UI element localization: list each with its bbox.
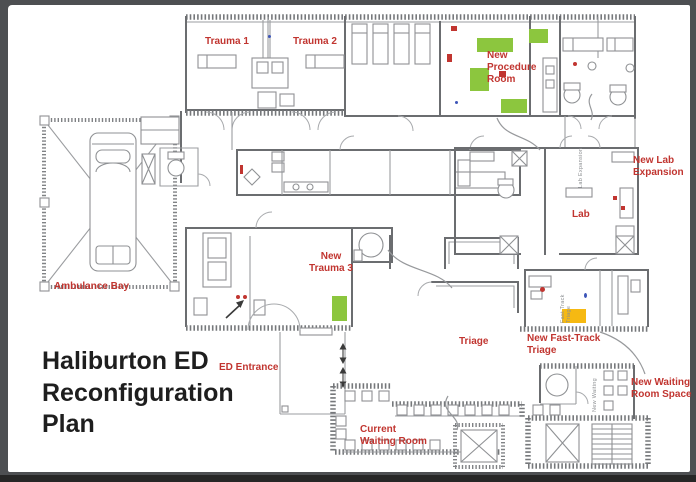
page-title-line3: Plan <box>42 409 234 441</box>
red-marker <box>540 287 545 292</box>
blue-marker <box>268 35 271 38</box>
label-new-trauma-3: New Trauma 3 <box>308 251 354 275</box>
arrow-annotation <box>226 305 240 318</box>
red-marker <box>621 206 625 210</box>
label-new-lab-expansion: New Lab Expansion <box>633 155 695 179</box>
label-trauma-2: Trauma 2 <box>284 36 346 48</box>
middle-room-strip <box>237 136 520 195</box>
frame-bottom-edge <box>0 475 696 482</box>
blue-marker <box>455 101 458 104</box>
left-rooms <box>141 112 232 186</box>
toilet <box>546 374 568 396</box>
new-trauma3-block <box>186 212 392 328</box>
screenshot-root: Lab Expansion Fast Track Triage New Wait… <box>0 0 696 482</box>
label-triage: Triage <box>459 336 503 348</box>
red-marker <box>613 196 617 200</box>
ambulance-vehicle <box>90 133 136 271</box>
label-new-fast-track-triage: New Fast-Track Triage <box>527 333 613 357</box>
label-ambulance-bay: Ambulance Bay <box>54 281 144 293</box>
page-title: Haliburton ED Reconfiguration Plan <box>42 346 234 441</box>
highlight-new-procedure-bed-2 <box>529 29 548 43</box>
highlight-new-procedure-bed-4 <box>501 99 527 113</box>
red-marker <box>573 62 577 66</box>
red-marker <box>451 26 457 31</box>
page-title-line1: Haliburton ED <box>42 346 234 378</box>
highlight-new-trauma3-bed <box>332 296 347 321</box>
label-trauma-1: Trauma 1 <box>196 36 258 48</box>
red-marker <box>447 54 452 62</box>
toilet <box>168 160 184 176</box>
red-marker <box>240 165 243 174</box>
blue-marker <box>584 293 587 298</box>
bed <box>198 55 236 68</box>
toilet <box>359 233 383 257</box>
staircase <box>592 424 632 464</box>
label-current-waiting-room: Current Waiting Room <box>360 424 434 448</box>
bed <box>306 55 344 68</box>
page-title-line2: Reconfiguration <box>42 378 234 410</box>
plan-text-lab-expansion: Lab Expansion <box>578 146 584 188</box>
plan-text-new-waiting: New Waiting <box>592 374 598 412</box>
red-marker <box>236 295 240 299</box>
label-new-procedure-room: New Procedure Room <box>487 50 543 86</box>
plan-text-fast-track: Fast Track Triage <box>560 281 572 323</box>
label-lab: Lab <box>572 209 602 221</box>
label-new-waiting-room-space: New Waiting Room Space <box>631 377 696 401</box>
red-marker <box>243 295 247 299</box>
